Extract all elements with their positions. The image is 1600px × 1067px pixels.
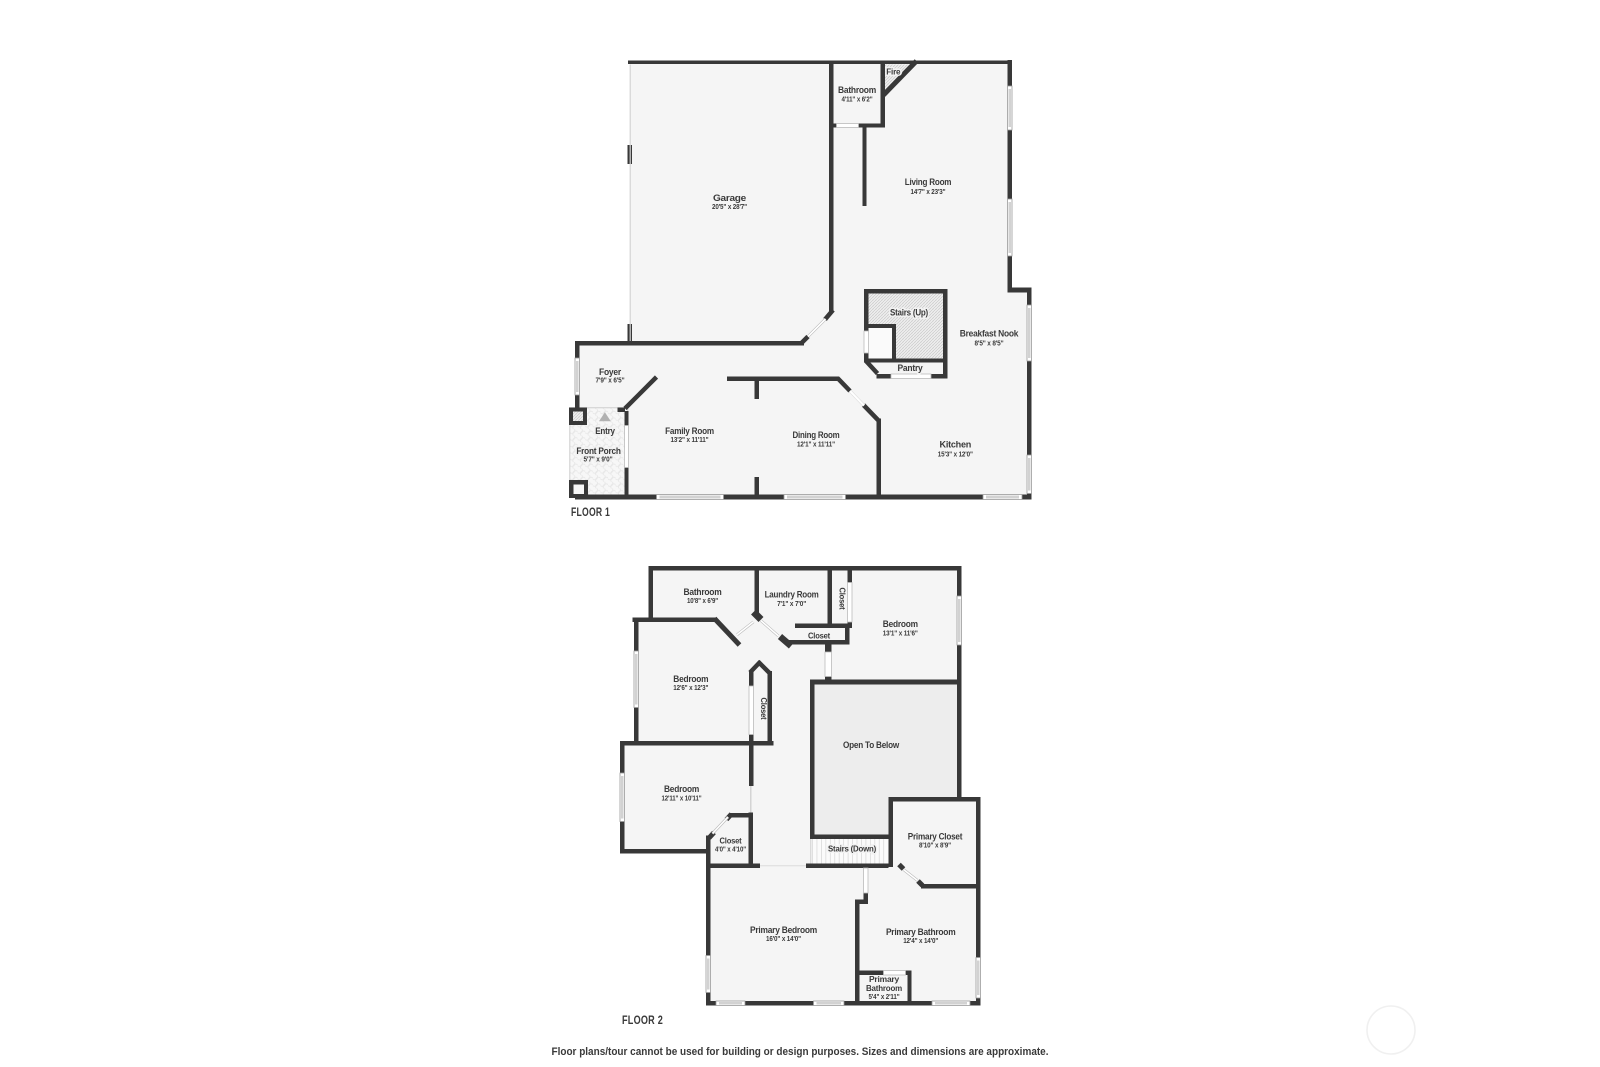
svg-text:Kitchen: Kitchen — [940, 440, 972, 450]
svg-text:Floor plans/tour cannot be use: Floor plans/tour cannot be used for buil… — [552, 1046, 1049, 1058]
svg-text:5'4" x 2'11": 5'4" x 2'11" — [869, 994, 900, 1001]
svg-text:Stairs (Up): Stairs (Up) — [890, 308, 928, 318]
svg-text:Bathroom: Bathroom — [838, 85, 876, 95]
svg-text:Bedroom: Bedroom — [673, 674, 708, 684]
svg-text:14'7" x 23'3": 14'7" x 23'3" — [911, 189, 946, 196]
svg-text:7'1" x 7'0": 7'1" x 7'0" — [777, 601, 806, 608]
svg-text:Dining Room: Dining Room — [793, 430, 840, 440]
svg-text:Primary Closet: Primary Closet — [908, 832, 963, 842]
svg-text:10'8" x 6'9": 10'8" x 6'9" — [687, 598, 718, 605]
svg-text:8'10" x 8'9": 8'10" x 8'9" — [919, 842, 951, 849]
svg-text:12'1" x 11'11": 12'1" x 11'11" — [797, 441, 835, 448]
svg-text:Closet: Closet — [759, 698, 768, 721]
svg-text:Bathroom: Bathroom — [866, 984, 902, 993]
svg-text:Front Porch: Front Porch — [576, 446, 621, 456]
svg-text:13'2" x 11'11": 13'2" x 11'11" — [671, 437, 709, 444]
svg-text:16'0" x 14'0": 16'0" x 14'0" — [766, 936, 801, 943]
svg-text:Open To Below: Open To Below — [843, 740, 900, 750]
svg-text:5'7" x 9'0": 5'7" x 9'0" — [584, 457, 613, 464]
svg-text:Breakfast Nook: Breakfast Nook — [960, 329, 1020, 339]
svg-text:Laundry Room: Laundry Room — [765, 590, 819, 600]
svg-text:Primary Bedroom: Primary Bedroom — [750, 925, 817, 935]
svg-text:Closet: Closet — [838, 588, 847, 611]
svg-text:FLOOR 2: FLOOR 2 — [622, 1015, 663, 1027]
svg-text:4'0" x 4'10": 4'0" x 4'10" — [715, 847, 746, 854]
svg-text:Stairs (Down): Stairs (Down) — [828, 845, 877, 854]
svg-text:Entry: Entry — [595, 426, 615, 436]
svg-text:Garage: Garage — [713, 193, 746, 203]
svg-text:Bathroom: Bathroom — [684, 587, 722, 597]
svg-text:12'4" x 14'0": 12'4" x 14'0" — [903, 938, 938, 945]
svg-text:20'5" x 28'7": 20'5" x 28'7" — [712, 204, 747, 211]
svg-text:8'5" x 8'5": 8'5" x 8'5" — [975, 340, 1004, 347]
svg-text:12'11" x 10'11": 12'11" x 10'11" — [662, 796, 702, 803]
svg-text:Bedroom: Bedroom — [664, 784, 699, 794]
svg-text:13'1" x 11'6": 13'1" x 11'6" — [883, 631, 918, 638]
svg-text:Pantry: Pantry — [898, 363, 924, 373]
svg-text:12'6" x 12'3": 12'6" x 12'3" — [673, 685, 708, 692]
svg-text:Family Room: Family Room — [665, 426, 714, 436]
svg-text:Primary Bathroom: Primary Bathroom — [886, 927, 956, 937]
svg-text:Closet: Closet — [808, 632, 831, 641]
svg-text:7'9" x 6'5": 7'9" x 6'5" — [596, 378, 625, 385]
svg-text:Bedroom: Bedroom — [883, 619, 918, 629]
svg-text:Living Room: Living Room — [905, 177, 952, 187]
svg-text:Closet: Closet — [720, 837, 743, 846]
svg-text:4'11" x 6'2": 4'11" x 6'2" — [842, 97, 873, 104]
svg-text:FLOOR 1: FLOOR 1 — [571, 507, 610, 519]
svg-text:Foyer: Foyer — [599, 367, 622, 377]
svg-text:15'3" x 12'0": 15'3" x 12'0" — [938, 452, 973, 459]
svg-text:Primary: Primary — [869, 975, 900, 984]
svg-text:Fire: Fire — [886, 68, 901, 77]
